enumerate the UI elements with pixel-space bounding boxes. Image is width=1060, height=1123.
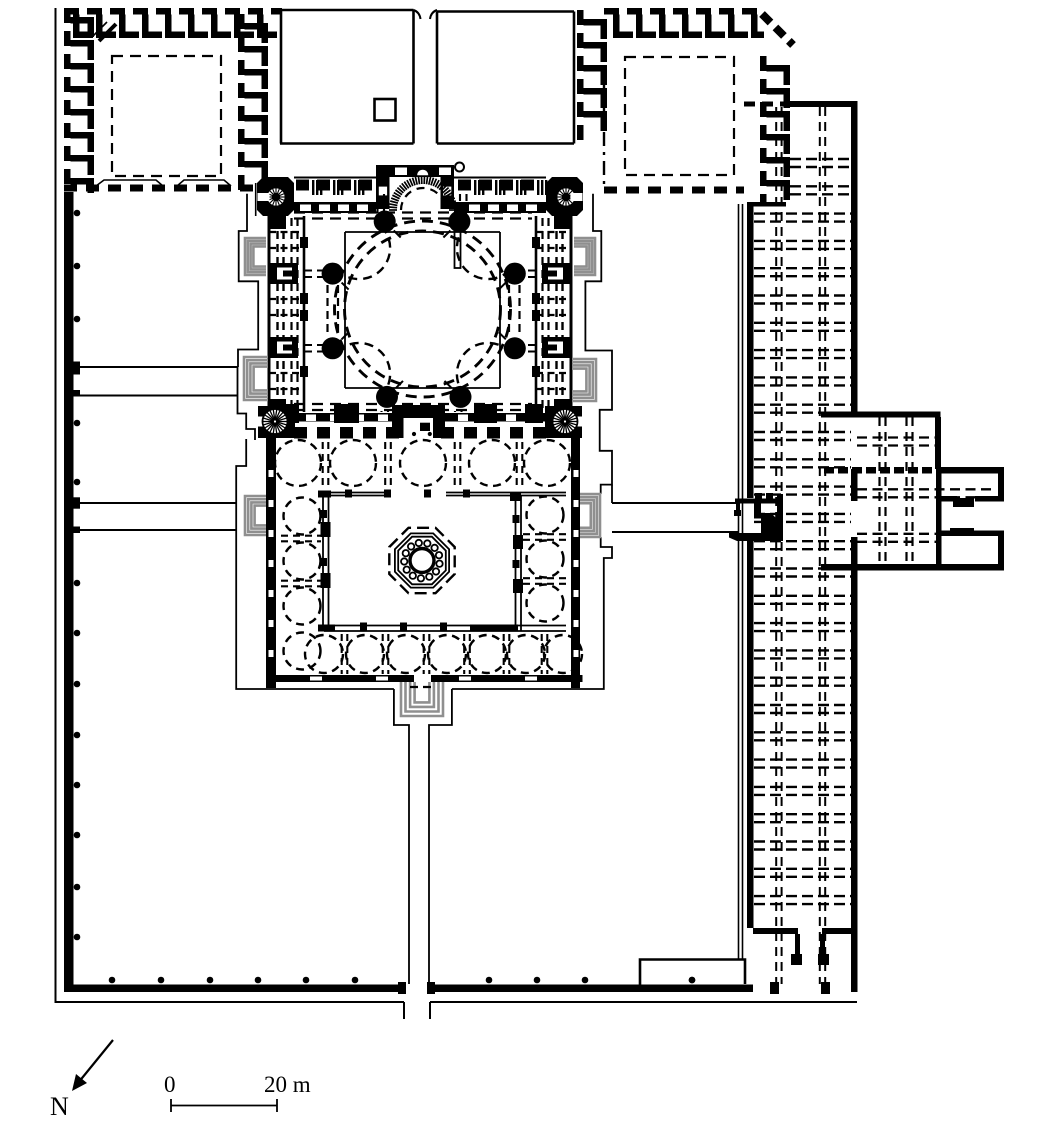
svg-text:N: N xyxy=(50,1092,69,1121)
svg-text:0: 0 xyxy=(164,1072,176,1097)
svg-text:20 m: 20 m xyxy=(264,1072,311,1097)
